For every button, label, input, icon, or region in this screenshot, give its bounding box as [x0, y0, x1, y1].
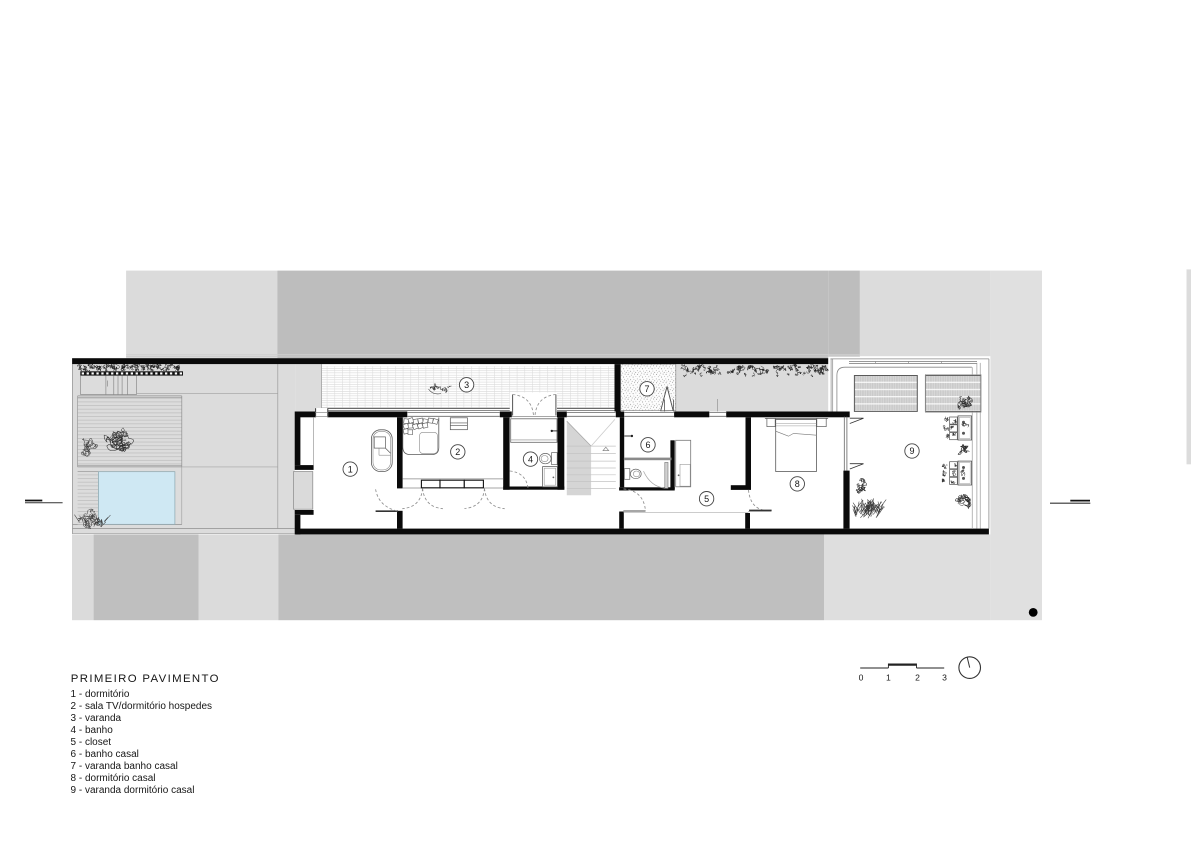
svg-text:4 - banho: 4 - banho [71, 725, 114, 736]
svg-text:9 - varanda dormitório casal: 9 - varanda dormitório casal [71, 785, 195, 796]
svg-text:8 - dormitório casal: 8 - dormitório casal [71, 773, 156, 784]
svg-text:2: 2 [455, 447, 460, 457]
svg-text:0: 0 [859, 673, 864, 683]
svg-text:9: 9 [909, 446, 914, 456]
svg-text:3 - varanda: 3 - varanda [71, 713, 122, 724]
svg-text:PRIMEIRO PAVIMENTO: PRIMEIRO PAVIMENTO [71, 673, 220, 685]
svg-text:4: 4 [528, 454, 533, 464]
svg-text:2: 2 [915, 673, 920, 683]
svg-text:6: 6 [645, 440, 650, 450]
svg-text:1 - dormitório: 1 - dormitório [71, 689, 130, 700]
svg-text:1: 1 [886, 673, 891, 683]
svg-text:1: 1 [348, 464, 353, 474]
svg-text:8: 8 [795, 479, 800, 489]
svg-text:6 - banho casal: 6 - banho casal [71, 749, 139, 760]
svg-text:5: 5 [704, 494, 709, 504]
svg-text:3: 3 [464, 380, 469, 390]
svg-text:7 - varanda banho casal: 7 - varanda banho casal [71, 761, 178, 772]
svg-text:5 - closet: 5 - closet [71, 737, 112, 748]
svg-text:2 - sala TV/dormitório hospede: 2 - sala TV/dormitório hospedes [71, 701, 213, 712]
svg-text:3: 3 [942, 673, 947, 683]
svg-text:7: 7 [644, 384, 649, 394]
